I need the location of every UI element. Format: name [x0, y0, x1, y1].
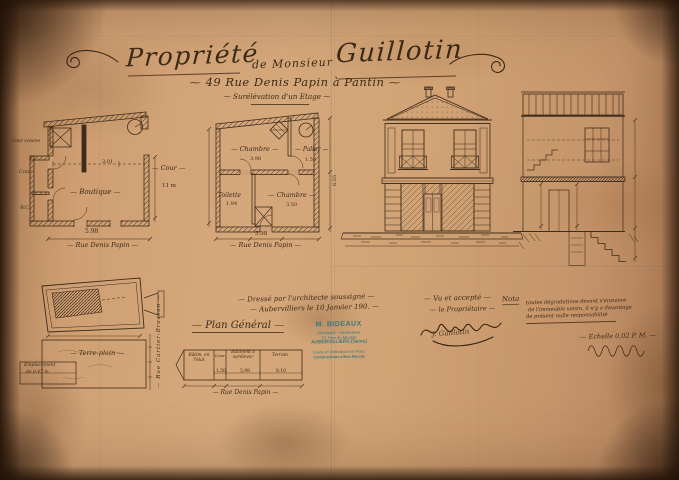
blueprint-document: Propriété de Monsieur Guillotin 49 Rue D…: [0, 0, 679, 480]
plan-general-comp3: Bâtiment à surélever: [226, 351, 260, 360]
ground-plan-street-label: Rue Denis Papin: [55, 242, 150, 249]
attic-plan-drawing: [18, 272, 176, 396]
first-plan-dim-bottom: 5.98: [255, 231, 267, 237]
ground-plan-cour-label: Cour: [19, 170, 31, 176]
section-drawing: [513, 84, 641, 276]
plan-general-dim4: 8.10: [276, 370, 286, 375]
title-subtitle: Surélévation d'un Etage: [187, 93, 367, 101]
ground-plan-bottom-dim: 5.98: [85, 229, 98, 236]
plan-general-title: Plan Général: [192, 320, 284, 333]
title-word-propriete: Propriété: [125, 40, 259, 72]
ground-plan-wc-label: W.C.: [20, 207, 30, 212]
plan-general-comp1: Bâtim. en l'état: [184, 354, 214, 363]
first-plan-dim-right: 6.55: [333, 175, 339, 186]
ground-plan-interior-dim: 3.01: [102, 160, 113, 166]
certification-line2: Aubervilliers le 10 Janvier 190.: [250, 303, 379, 314]
pen-squiggle: [586, 344, 656, 356]
pen-flourish-right: [448, 50, 510, 78]
fold-crease-horizontal: [0, 36, 679, 38]
terrain-label: Terre-plein: [62, 350, 132, 357]
title-connector: de Monsieur: [252, 57, 333, 72]
plan-general-street-label: Rue Denis Papin: [198, 390, 293, 397]
title-word-guillotin: Guillotin: [335, 36, 464, 69]
ground-plan-room-label: Boutique: [70, 189, 121, 197]
corner-note-line1: Emplacement: [24, 364, 55, 369]
stamp-line6: Constructions à Bon Marché: [296, 354, 382, 360]
architect-stamp: M. BIDEAUX Architecte - Vérificateur 13,…: [296, 320, 383, 360]
first-plan-room-bottom-right: Chambre: [268, 192, 315, 199]
first-plan-dim-bottom-left: 1.94: [226, 202, 237, 208]
plan-general-dim3: 5.98: [240, 370, 250, 375]
first-plan-room-bottom-left: Toilette: [218, 193, 241, 200]
first-plan-dim-top-left: 3.98: [250, 157, 261, 163]
ground-floor-plan-drawing: [24, 110, 202, 252]
side-street-label: Rue Cartier-Bresson: [156, 294, 162, 388]
nota-underline: [526, 321, 616, 324]
subtitle-underline: [251, 104, 309, 105]
first-floor-plan-drawing: [202, 108, 364, 254]
plan-general-comp4: Terrain: [262, 354, 298, 359]
first-plan-street-label: Rue Denis Papin: [218, 242, 313, 249]
stamp-city: AUBERVILLIERS (Seine): [296, 339, 382, 346]
ground-plan-cour-right-dim: 11 m: [162, 183, 176, 189]
plan-general-comp2: Cour: [214, 354, 226, 358]
first-plan-room-top-right: Palier: [295, 147, 328, 154]
scale-label: Echelle 0,02 P. M.: [580, 332, 656, 341]
ground-plan-cour-right-label: Cour: [152, 165, 185, 172]
first-plan-dim-top-right: 1.50: [305, 158, 316, 164]
nota-label: Nota: [502, 296, 520, 305]
approval-line1: Vu et accepté: [424, 294, 491, 303]
pen-flourish-left: [62, 46, 120, 74]
front-elevation-drawing: [341, 86, 523, 276]
first-plan-dim-bottom-right: 3.50: [286, 203, 297, 209]
ground-plan-cour-voisine-label: Cour voisine: [10, 140, 42, 145]
first-plan-room-top-left: Chambre: [231, 146, 278, 153]
plan-general-dim2: 1.50: [216, 370, 226, 375]
corner-note-line2: de 0,47 m: [26, 371, 49, 376]
nota-line3: de présent nulle responsabilité: [526, 313, 608, 321]
